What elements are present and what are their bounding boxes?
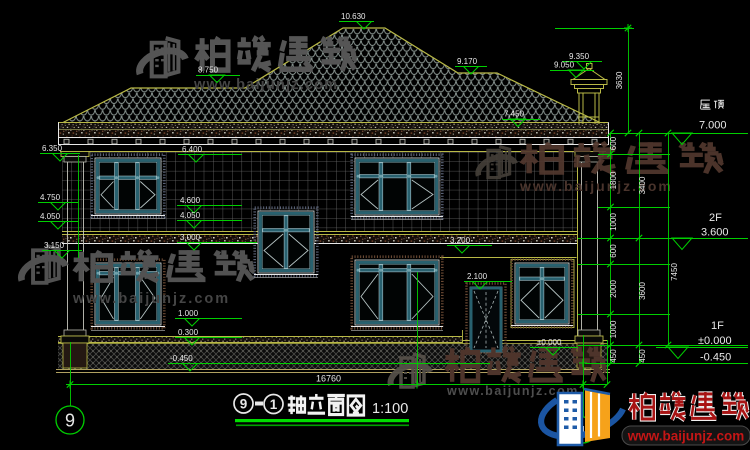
svg-text:1000: 1000 — [609, 320, 618, 338]
svg-text:3600: 3600 — [638, 282, 647, 300]
svg-text:1800: 1800 — [609, 171, 618, 189]
svg-text:7450: 7450 — [670, 263, 679, 281]
svg-text:2000: 2000 — [609, 280, 618, 298]
svg-text:2F: 2F — [709, 212, 722, 224]
svg-text:www.baijunjz.com: www.baijunjz.com — [72, 291, 230, 307]
svg-text:6.400: 6.400 — [182, 145, 203, 154]
svg-text:1F: 1F — [711, 320, 724, 332]
svg-text:1: 1 — [270, 397, 278, 412]
svg-text:2.100: 2.100 — [467, 272, 488, 281]
svg-text:3630: 3630 — [615, 71, 624, 89]
svg-text:±0.000: ±0.000 — [537, 338, 562, 347]
svg-text:3.150: 3.150 — [44, 241, 65, 250]
svg-text:www.baijunjz.com: www.baijunjz.com — [627, 429, 745, 444]
svg-text:600: 600 — [609, 136, 618, 150]
svg-text:4.600: 4.600 — [180, 196, 201, 205]
svg-text:1.000: 1.000 — [178, 309, 199, 318]
svg-text:1000: 1000 — [609, 213, 618, 231]
svg-text:7.000: 7.000 — [699, 120, 727, 132]
svg-text:10.630: 10.630 — [341, 12, 366, 21]
svg-text:3.600: 3.600 — [701, 227, 729, 239]
svg-text:450: 450 — [638, 349, 647, 363]
svg-text:4.050: 4.050 — [180, 211, 201, 220]
svg-text:0.300: 0.300 — [178, 328, 199, 337]
svg-text:www.baijunjz.com: www.baijunjz.com — [519, 178, 673, 194]
svg-text:3.000: 3.000 — [180, 233, 201, 242]
svg-text:8.750: 8.750 — [198, 66, 219, 75]
svg-text:450: 450 — [609, 349, 618, 363]
svg-text:3.200: 3.200 — [450, 236, 471, 245]
svg-text:±0.000: ±0.000 — [698, 335, 732, 347]
svg-text:-0.450: -0.450 — [700, 352, 731, 364]
svg-text:1:100: 1:100 — [372, 401, 408, 417]
svg-text:7.450: 7.450 — [504, 110, 525, 119]
svg-text:600: 600 — [609, 244, 618, 258]
svg-text:www.baijunjz.com: www.baijunjz.com — [193, 77, 338, 93]
svg-text:4.750: 4.750 — [40, 193, 61, 202]
svg-text:-0.450: -0.450 — [170, 354, 193, 363]
svg-text:6.350: 6.350 — [42, 144, 63, 153]
svg-text:4.050: 4.050 — [40, 212, 61, 221]
svg-text:9.170: 9.170 — [457, 57, 478, 66]
svg-text:9.050: 9.050 — [554, 61, 575, 70]
svg-text:3400: 3400 — [638, 176, 647, 194]
svg-text:9: 9 — [240, 397, 248, 412]
svg-text:16760: 16760 — [316, 374, 341, 384]
svg-text:9: 9 — [65, 411, 75, 431]
